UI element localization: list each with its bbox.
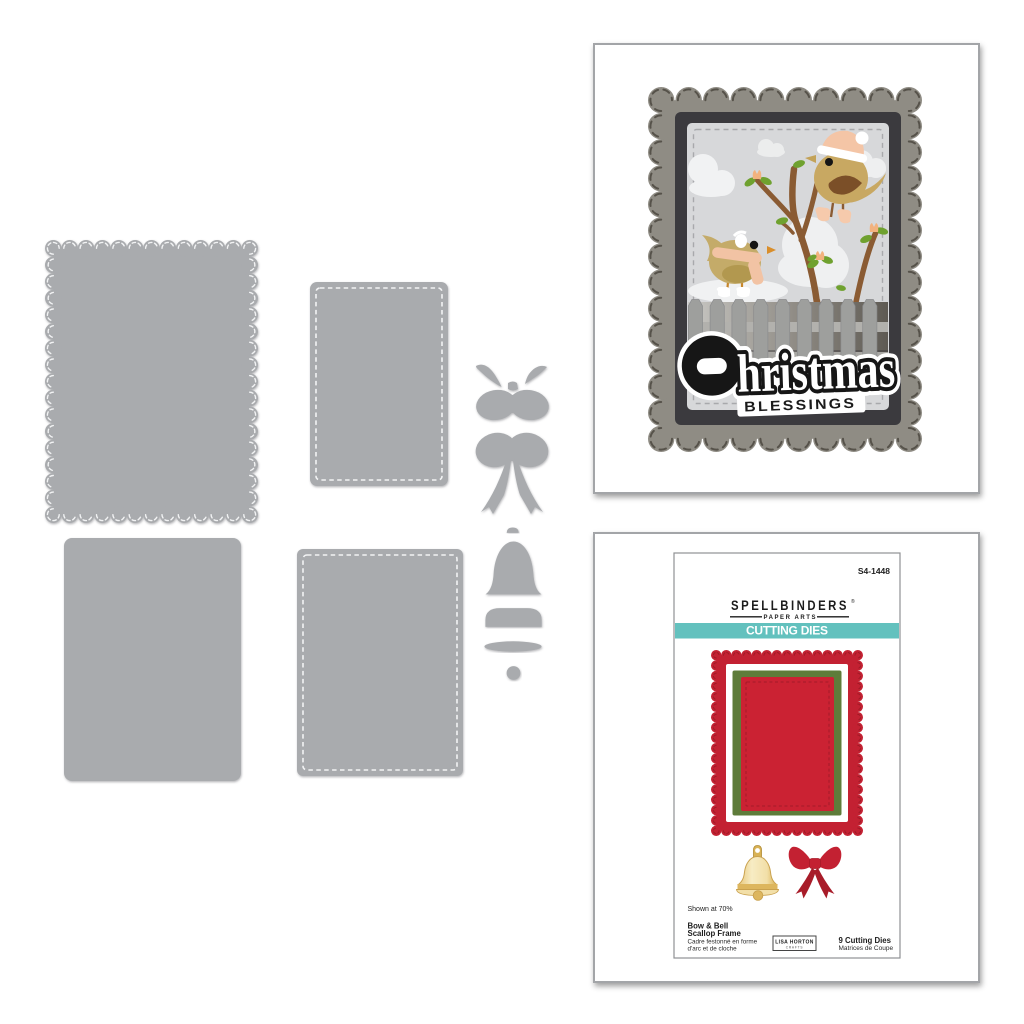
svg-text:®: ® [851, 598, 855, 605]
svg-text:Matrices de Coupe: Matrices de Coupe [839, 945, 894, 952]
svg-text:Scallop Frame: Scallop Frame [688, 929, 742, 938]
svg-text:d'arc et de cloche: d'arc et de cloche [688, 946, 738, 953]
svg-text:PAPER ARTS: PAPER ARTS [764, 615, 816, 621]
svg-text:Cadre festonné en forme: Cadre festonné en forme [688, 939, 758, 946]
svg-text:Shown at 70%: Shown at 70% [688, 906, 733, 913]
svg-text:9 Cutting Dies: 9 Cutting Dies [839, 936, 892, 945]
svg-text:CRAFTS: CRAFTS [786, 946, 804, 950]
svg-text:hristmas: hristmas [736, 338, 896, 403]
svg-text:CUTTING DIES: CUTTING DIES [746, 624, 828, 638]
svg-text:S4-1448: S4-1448 [858, 566, 890, 576]
svg-text:SPELLBINDERS: SPELLBINDERS [731, 598, 849, 613]
